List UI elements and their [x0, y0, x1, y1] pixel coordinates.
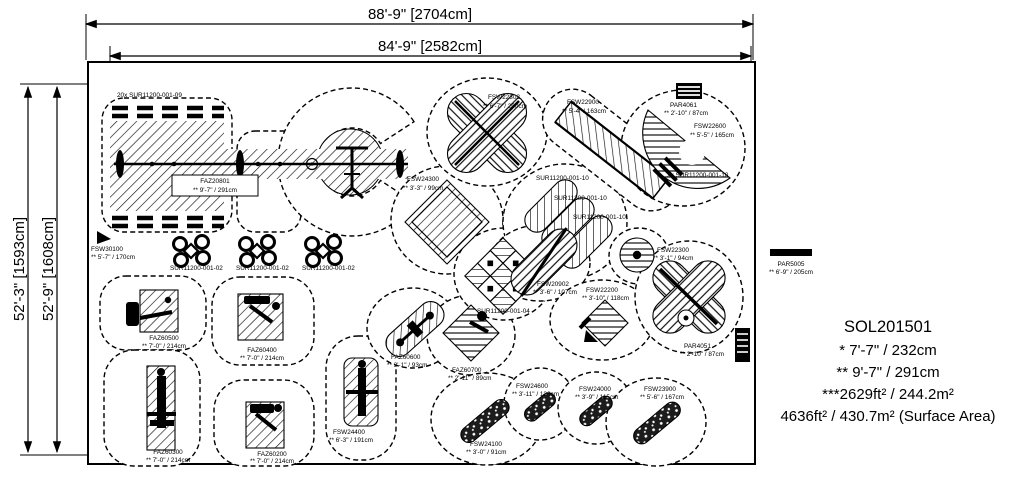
par4051-bench-icon	[735, 328, 750, 362]
label-fsw22600-size: ** 5'-5" / 165cm	[690, 132, 734, 139]
title-block: SOL201501 * 7'-7" / 232cm ** 9'-7" / 291…	[780, 318, 995, 425]
label-sur10x2: 2x SUR11200-001-10	[667, 172, 729, 179]
dim-left-outer: 52'-3" [1593cm]	[11, 217, 28, 321]
label-fsw24000-code: FSW24000	[579, 386, 611, 393]
swing-post-icon	[396, 150, 404, 178]
label-faz60500-size: ** 7'-0" / 214cm	[142, 343, 186, 350]
label-faz60600-code: FAZ60600	[391, 354, 421, 361]
top-dimensions: 88'-9" [2704cm] 84'-9" [2582cm]	[86, 6, 753, 62]
label-faz20801-code: FAZ20801	[200, 178, 230, 185]
swing-post-icon	[236, 150, 244, 178]
dim-left-inner: 52'-9" [1608cm]	[40, 217, 57, 321]
label-fsw24000-size: ** 3'-9" / 115cm	[575, 394, 619, 401]
par5005-bench-icon	[770, 249, 812, 256]
label-faz60200-code: FAZ60200	[257, 451, 287, 458]
label-par4051-code: PAR4051	[684, 343, 711, 350]
label-fsw22300-size: ** 3'-1" / 94cm	[653, 255, 693, 262]
label-faz20801-size: ** 9'-7" / 291cm	[193, 187, 237, 194]
label-sur10c: SUR11200-001-10	[573, 214, 626, 221]
par4061-bench-icon	[676, 83, 702, 99]
label-fsw24600-code: FSW24600	[516, 383, 548, 390]
label-sur10b: SUR11200-001-10	[554, 195, 607, 202]
label-fsw22300-code: FSW22300	[657, 247, 689, 254]
label-fsw22900-size: ** 5'-4" / 163cm	[562, 108, 606, 115]
label-sur02c: SUR11200-001-02	[302, 265, 355, 272]
label-faz60700-size: ** 2'-11" / 89cm	[448, 375, 492, 382]
label-fsw22900-code: FSW22900	[567, 99, 599, 106]
label-faz60300-code: FAZ60300	[153, 449, 183, 456]
label-fsw24100-size: ** 3'-0" / 91cm	[466, 449, 506, 456]
label-fsw23900-size: ** 5'-6" / 167cm	[640, 394, 684, 401]
label-sur09: 20x SUR11200-001-09	[117, 92, 182, 99]
dim-top-outer: 88'-9" [2704cm]	[368, 6, 472, 23]
model-number: SOL201501	[844, 318, 932, 336]
surface-area-note: 4636ft² / 430.7m² (Surface Area)	[780, 408, 995, 425]
label-fsw23900-code: FSW23900	[644, 386, 676, 393]
height-note-1: * 7'-7" / 232cm	[839, 342, 936, 359]
label-faz60300-size: ** 7'-0" / 214cm	[146, 457, 190, 464]
label-fsw20902-size: ** 3'-6" / 107cm	[533, 289, 577, 296]
label-sur04: SUR11200-001-04	[477, 308, 530, 315]
label-fsw22302-code: FSW22302	[488, 94, 520, 101]
label-fsw22200-size: ** 3'-10" / 118cm	[582, 295, 629, 302]
label-faz60600-size: ** 3'-1" / 93cm	[387, 362, 427, 369]
area-note: ***2629ft² / 244.2m²	[822, 386, 954, 403]
label-fsw30100-code: FSW30100	[91, 246, 123, 253]
label-par4051-size: ** 2'-10" / 87cm	[680, 351, 724, 358]
label-sur02a: SUR11200-001-02	[170, 265, 223, 272]
label-par4061-code: PAR4061	[670, 102, 697, 109]
label-fsw24400-size: ** 6'-3" / 191cm	[329, 437, 373, 444]
label-faz60500-code: FAZ60500	[149, 335, 179, 342]
label-faz60700-code: FAZ60700	[452, 367, 482, 374]
label-fsw24600-size: ** 3'-11" / 120cm	[512, 391, 559, 398]
swing-post-icon	[116, 150, 124, 178]
label-fsw22302-size: ** 6'-7" / 200cm	[483, 103, 527, 110]
label-fsw20902-code: FSW20902	[537, 281, 569, 288]
label-faz60400-size: ** 7'-0" / 214cm	[240, 355, 284, 362]
label-par5005-size: ** 6'-9" / 205cm	[769, 269, 813, 276]
label-par4061-size: ** 2'-10" / 87cm	[664, 110, 708, 117]
left-dimensions: 52'-3" [1593cm] 52'-9" [1608cm]	[11, 84, 88, 455]
label-fsw24400-code: FSW24400	[333, 429, 365, 436]
label-fsw24100-code: FSW24100	[470, 441, 502, 448]
label-fsw30100-size: ** 5'-7" / 170cm	[91, 254, 135, 261]
label-fsw24300-size: ** 3'-3" / 99cm	[403, 185, 443, 192]
site-plan-svg: 88'-9" [2704cm] 84'-9" [2582cm] 52'-3" […	[0, 0, 1024, 478]
label-sur02b: SUR11200-001-02	[236, 265, 289, 272]
label-faz60200-size: ** 7'-0" / 214cm	[250, 458, 294, 465]
label-fsw22200-code: FSW22200	[586, 287, 618, 294]
label-fsw24300-code: FSW24300	[407, 176, 439, 183]
site-plan-drawing: 88'-9" [2704cm] 84'-9" [2582cm] 52'-3" […	[0, 0, 1024, 478]
height-note-2: ** 9'-7" / 291cm	[836, 364, 939, 381]
label-par5005-code: PAR5005	[778, 261, 805, 268]
label-sur10a: SUR11200-001-10	[536, 175, 589, 182]
label-faz60400-code: FAZ60400	[247, 347, 277, 354]
label-fsw22600-code: FSW22600	[694, 123, 726, 130]
dim-top-inner: 84'-9" [2582cm]	[378, 38, 482, 55]
